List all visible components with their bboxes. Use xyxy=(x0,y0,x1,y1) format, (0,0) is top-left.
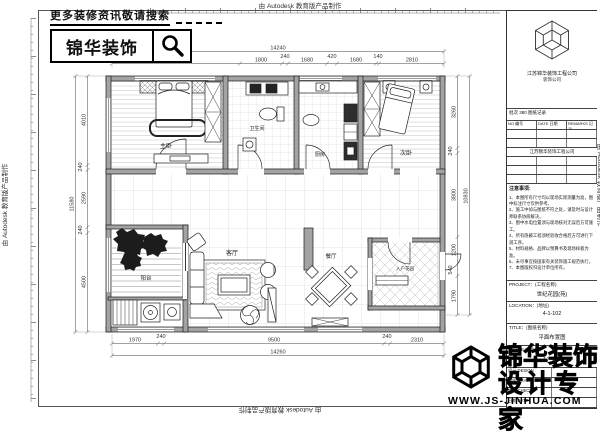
dim: 240 xyxy=(156,334,165,340)
dim: 1680 xyxy=(301,58,313,64)
window-bedroom2-top xyxy=(378,76,436,81)
dim: 2590 xyxy=(82,192,88,204)
revision-col-remarks: REMARKS 记录 xyxy=(567,121,597,129)
dim: 9500 xyxy=(268,338,280,344)
wardrobe xyxy=(364,82,380,136)
room-label-kitchen: 厨房 xyxy=(315,151,325,158)
window-dining-bottom xyxy=(318,327,362,332)
revision-col-no: NO 编号 xyxy=(507,121,537,129)
dim: 140 xyxy=(373,54,382,60)
note-line: 3、图中水电位置须与现场核对无误后方可施工。 xyxy=(509,220,595,233)
dim: 1790 xyxy=(452,290,458,302)
revision-row xyxy=(507,157,597,166)
brand-watermark-url: WWW.JS-JINHUA.COM xyxy=(448,395,582,407)
field-title-label: TITLE：(图纸名称) xyxy=(509,325,595,331)
note-line: 4、所有隐蔽工程须经验收合格后方可进行下道工序。 xyxy=(509,233,595,246)
dim-top-total: 14240 xyxy=(270,46,285,52)
autodesk-credit-bottom: 由 Autodesk 教育版产品制作 xyxy=(238,406,321,415)
dim: 3800 xyxy=(452,189,458,201)
company-cube-logo xyxy=(530,17,574,63)
autodesk-credit-top: 由 Autodesk 教育版产品制作 xyxy=(259,1,342,10)
note-line: 5、材料规格、品牌以预算书及现场样板为准。 xyxy=(509,246,595,259)
brand-cube-icon xyxy=(448,343,494,391)
field-project: PROJECT：(工程名称) 世纪花园(苑) xyxy=(507,281,597,303)
field-project-label: PROJECT：(工程名称) xyxy=(509,282,595,288)
room-label-entry: 入户花园 xyxy=(396,265,414,272)
field-project-value: 世纪花园(苑) xyxy=(509,290,595,298)
dim-bottom-total: 14260 xyxy=(270,350,285,356)
dim: 4010 xyxy=(82,114,88,126)
coffee-table xyxy=(218,275,250,295)
dim-left-total: 11580 xyxy=(70,197,76,212)
nightstand xyxy=(420,81,432,93)
field-location-value: 4-1-102 xyxy=(509,311,595,317)
dim: 2310 xyxy=(411,338,423,344)
room-label-master: 主卧 xyxy=(160,142,172,150)
room-label-living: 客厅 xyxy=(226,249,238,257)
promo-tagline: 更多装修资讯敬请搜索 xyxy=(50,7,170,26)
company-logo-cell: 江苏锦华装饰工程公司 装饰公司 xyxy=(507,11,597,109)
note-line: 2、施工中如与图纸不符之处，请及时与设计师联系协商解决。 xyxy=(509,207,595,220)
window-master-left xyxy=(106,98,111,152)
dim: 1970 xyxy=(129,338,141,344)
sideboard xyxy=(312,318,348,326)
room-label-dining: 餐厅 xyxy=(325,252,337,260)
company-name: 江苏锦华装饰工程公司 xyxy=(507,70,597,77)
window-living-bottom xyxy=(208,327,304,332)
dim: 240 xyxy=(78,162,84,171)
autodesk-credit-left: 由 Autodesk 教育版产品制作 xyxy=(0,163,9,246)
entry-items xyxy=(376,276,408,285)
field-location: LOCATION：(地址) 4-1-102 xyxy=(507,302,597,324)
washing-machine xyxy=(141,303,160,322)
revision-company-row: 江苏锦华装饰工程公司 xyxy=(507,148,597,157)
dim: 240 xyxy=(280,54,289,60)
dim: 1800 xyxy=(255,58,267,64)
kitchen-counter xyxy=(299,81,357,93)
notes-title: 注意事项: xyxy=(509,186,595,194)
promo-header: 更多装修资讯敬请搜索 锦华装饰 xyxy=(50,6,222,63)
revision-header-row: NO 编号 DATE 日期 REMARKS 记录 xyxy=(507,121,597,130)
brand-logo-box: 锦华装饰 xyxy=(50,29,154,63)
dim: 240 xyxy=(448,146,454,155)
sink-basin xyxy=(303,115,319,126)
search-icon-box xyxy=(154,29,192,63)
dim: 240 xyxy=(382,334,391,340)
headboard-cabinet xyxy=(140,81,156,93)
window-kitchen-top xyxy=(300,76,342,81)
company-subtitle: 装饰公司 xyxy=(507,77,597,83)
room-label-bedroom2: 次卧 xyxy=(400,149,412,157)
revision-row xyxy=(507,130,597,139)
revision-row xyxy=(507,175,597,184)
revision-row xyxy=(507,139,597,148)
notes-block: 注意事项: 1、本图所有尺寸均以现场实际测量为准，图中标注尺寸仅供参考。 2、施… xyxy=(507,184,597,280)
brand-name: 锦华装饰 xyxy=(66,34,138,59)
potted-plant xyxy=(241,306,260,325)
dim: 1680 xyxy=(350,58,362,64)
note-line: 7、本图版权归设计单位所有。 xyxy=(509,265,595,271)
search-icon xyxy=(159,33,185,59)
dim: 2810 xyxy=(406,58,418,64)
dim-right-total: 10830 xyxy=(464,188,470,203)
field-location-label: LOCATION：(地址) xyxy=(509,303,595,309)
room-label-bath: 卫生间 xyxy=(249,125,264,132)
dim: 1200 xyxy=(452,244,458,256)
dim: 3260 xyxy=(452,106,458,118)
entry-tiles xyxy=(372,242,438,306)
brand-watermark: 锦华装饰 设计专家 WWW.JS-JINHUA.COM xyxy=(448,335,600,417)
dim: 420 xyxy=(327,54,336,60)
laundry-sink xyxy=(164,304,180,320)
tagline-dashes xyxy=(176,22,222,24)
window-balcony-left xyxy=(106,238,111,292)
window-master-top xyxy=(135,76,215,81)
revision-col-date: DATE 日期 xyxy=(537,121,567,129)
revision-title: 批次 380 图纸记录 xyxy=(507,109,597,121)
wardrobe xyxy=(205,82,221,142)
tv-cabinet xyxy=(154,154,208,163)
vanity-counter xyxy=(246,82,288,95)
washbasin xyxy=(243,138,256,151)
revision-row xyxy=(507,166,597,175)
dim: 540 xyxy=(448,265,454,274)
toilet xyxy=(260,107,285,121)
note-line: 1、本图所有尺寸均以现场实际测量为准，图中标注尺寸仅供参考。 xyxy=(509,195,595,208)
window-balcony-bottom xyxy=(118,327,174,332)
armchair xyxy=(261,263,276,278)
dim: 4500 xyxy=(82,276,88,288)
tv-panel xyxy=(268,288,276,322)
appliance-column xyxy=(344,104,357,160)
room-label-balcony: 阳台 xyxy=(140,274,152,282)
dim: 240 xyxy=(78,225,84,234)
